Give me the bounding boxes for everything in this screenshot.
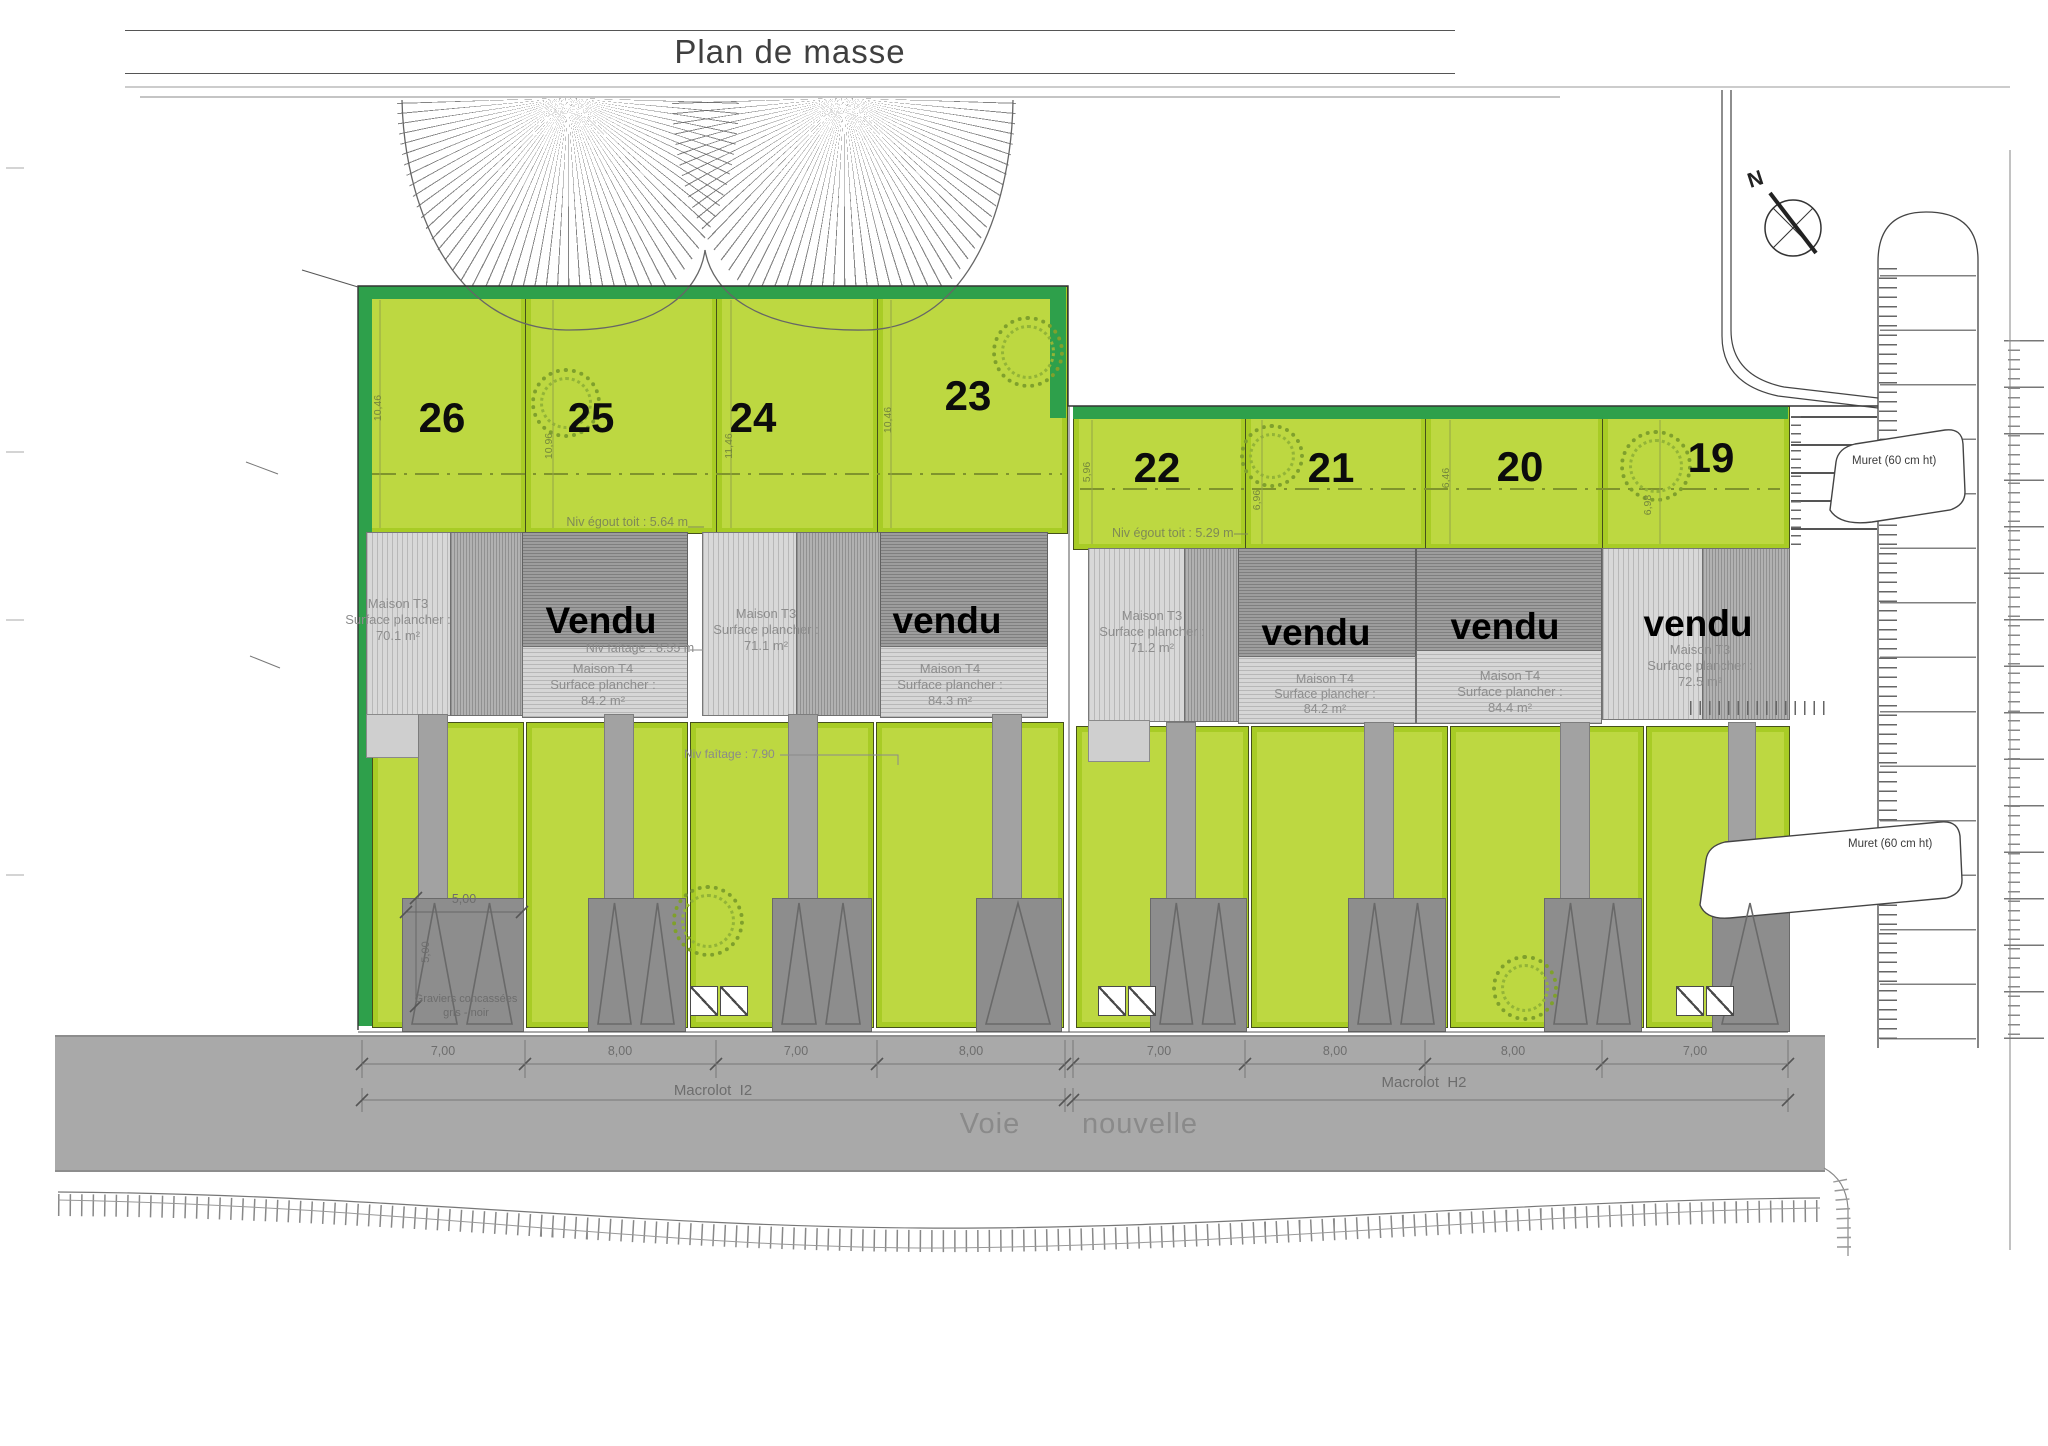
utility-box-icon (1676, 986, 1704, 1016)
sold-label-2: vendu (893, 600, 1002, 642)
tree-icon (1620, 430, 1692, 502)
road-name-word1: Voie (960, 1108, 1020, 1141)
lot-19-number: 19 (1688, 434, 1735, 482)
lot-26-depth-dim: 10,46 (372, 395, 384, 421)
frontage-dim-3: 7,00 (784, 1044, 808, 1058)
site-plan-sheet: Plan de masse 26 25 24 23 22 21 20 19 10… (0, 0, 2048, 1446)
lot-21-number: 21 (1308, 444, 1355, 492)
building-t4-label-1: Maison T4Surface plancher :84.2 m² (513, 661, 693, 709)
roof-ridge-level-2: Niv faîtage : 7.90 (684, 747, 775, 761)
walkway (1166, 722, 1196, 902)
walkway (1364, 722, 1394, 902)
frontage-dim-5: 7,00 (1147, 1044, 1171, 1058)
muret-label-1: Muret (60 cm ht) (1852, 455, 1936, 467)
lot-22-depth-dim: 5,96 (1081, 462, 1093, 482)
lot-20-number: 20 (1497, 443, 1544, 491)
sold-label-3: vendu (1262, 612, 1371, 654)
lot-23-number: 23 (945, 372, 992, 420)
utility-box-icon (720, 986, 748, 1016)
utility-box-icon (1706, 986, 1734, 1016)
lot-22-number: 22 (1134, 444, 1181, 492)
building-t4-label-2: Maison T4Surface plancher :84.3 m² (860, 661, 1040, 709)
lot-19-depth-dim: 6,98 (1642, 495, 1654, 515)
building-t3-label-4: Maison T3Surface plancher :72.5 m² (1610, 642, 1790, 690)
roof-eave-level-1: Niv égout toit : 5.64 m (500, 515, 688, 529)
sold-label-5: vendu (1644, 603, 1753, 645)
macrolot-right-label: Macrolot H2 (1381, 1074, 1466, 1091)
macrolot-left-label: Macrolot I2 (674, 1082, 752, 1099)
driveway-width-dim: 5,00 (452, 892, 476, 906)
utility-box-icon (1098, 986, 1126, 1016)
frontage-dim-8: 7,00 (1683, 1044, 1707, 1058)
tree-icon (992, 316, 1064, 388)
building-t3-label-1: Maison T3Surface plancher :70.1 m² (308, 596, 488, 644)
tree-icon (1240, 424, 1304, 488)
lot-25-depth-dim: 10,96 (543, 433, 555, 459)
frontage-dim-4: 8,00 (959, 1044, 983, 1058)
north-label: N (1745, 166, 1767, 194)
gravel-note: Graviers concasséesgris - noir (396, 992, 536, 1020)
driveway-lot21 (1348, 898, 1446, 1032)
road-voie-nouvelle (55, 1035, 1825, 1172)
frontage-dim-6: 8,00 (1323, 1044, 1347, 1058)
lot-24-number: 24 (730, 394, 777, 442)
frontage-dim-7: 8,00 (1501, 1044, 1525, 1058)
utility-box-icon (690, 986, 718, 1016)
road-name-word2: nouvelle (1082, 1108, 1198, 1141)
driveway-lot20 (1544, 898, 1642, 1032)
building-t3-label-3: Maison T3Surface plancher :71.2 m² (1062, 608, 1242, 656)
lot-25-number: 25 (568, 394, 615, 442)
utility-box-icon (1128, 986, 1156, 1016)
roof-eave-level-2: Niv égout toit : 5.29 m (1112, 526, 1234, 540)
driveway-lot24 (772, 898, 872, 1032)
building-stub (1088, 720, 1150, 762)
walkway (1560, 722, 1590, 902)
lot-20-depth-dim: 6,46 (1440, 468, 1452, 488)
lot-21-depth-dim: 6,96 (1251, 490, 1263, 510)
driveway-lot22 (1150, 898, 1247, 1032)
frontage-dim-2: 8,00 (608, 1044, 632, 1058)
walkway (418, 714, 448, 902)
driveway-depth-dim: 5,00 (420, 941, 432, 962)
walkway (992, 714, 1022, 902)
driveway-lot23 (976, 898, 1062, 1032)
walkway (1728, 722, 1756, 902)
building-t4-label-4: Maison T4Surface plancher :84.4 m² (1420, 668, 1600, 716)
walkway (788, 714, 818, 902)
walkway (604, 714, 634, 902)
green-boundary-top-right (1073, 406, 1788, 419)
tree-icon (672, 885, 744, 957)
roof-ridge-level-1: Niv faîtage : 8.55 m (560, 641, 720, 655)
green-boundary-top-left (358, 286, 1066, 299)
lot-26-number: 26 (419, 394, 466, 442)
muret-label-2: Muret (60 cm ht) (1848, 838, 1932, 850)
sold-label-1: Vendu (545, 600, 656, 642)
sold-label-4: vendu (1451, 606, 1560, 648)
lot-23-depth-dim: 10,46 (882, 407, 894, 433)
page-title: Plan de masse (125, 30, 1455, 74)
frontage-dim-1: 7,00 (431, 1044, 455, 1058)
tree-icon (1492, 955, 1558, 1021)
building-t4-label-3: Maison T4Surface plancher :84.2 m² (1235, 672, 1415, 717)
garden-axis-left (372, 473, 1062, 475)
